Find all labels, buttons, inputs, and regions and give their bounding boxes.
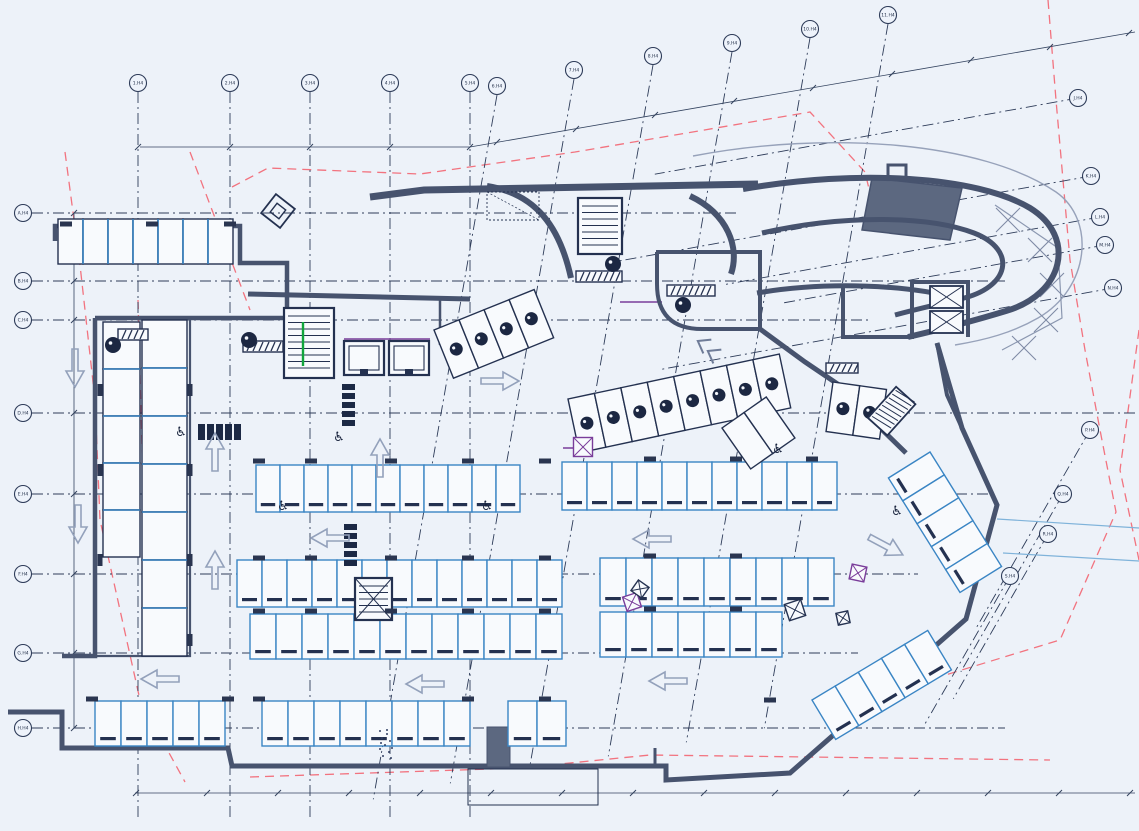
gravel-dot [386, 729, 388, 731]
wheel-stop [709, 648, 725, 651]
structural-column [764, 698, 776, 703]
grid-bubble-label: 9.H4 [727, 41, 738, 47]
wheel-stop [817, 501, 832, 504]
wheel-stop [767, 501, 782, 504]
gravel-dot [380, 742, 382, 744]
structural-column [730, 554, 742, 559]
wheel-stop [293, 737, 309, 740]
wheel-stop [515, 650, 531, 653]
wheel-stop [429, 503, 443, 506]
equipment-symbol-dot [245, 336, 249, 340]
wheelchair-icon: ♿ [891, 504, 903, 519]
gravel-dot [379, 730, 381, 732]
parking-stall [142, 512, 187, 560]
wheel-stop [492, 598, 507, 601]
crosswalk-bar [344, 551, 357, 557]
equipment-symbol [241, 332, 257, 348]
grid-bubble-label: G.H4 [17, 651, 28, 657]
parking-row [237, 560, 562, 607]
grid-bubble-label: F.H4 [18, 572, 28, 578]
wheel-stop [514, 737, 531, 740]
floor-plan-canvas: ♿♿♿♿♿♿1.H42.H43.H44.H45.H46.H47.H48.H49.… [0, 0, 1139, 831]
grid-bubble-label: 1.H4 [133, 81, 144, 87]
structural-column [146, 222, 158, 227]
parking-stall [142, 608, 187, 656]
parking-stall [103, 463, 140, 510]
wheel-stop [281, 650, 297, 653]
wheel-stop [126, 737, 142, 740]
structural-column [98, 384, 103, 396]
wheelchair-icon: ♿ [277, 499, 289, 514]
wheel-stop [517, 598, 532, 601]
parking-stall [142, 368, 187, 416]
structural-column [188, 554, 193, 566]
structural-column [385, 556, 397, 561]
crosswalk-bar [225, 424, 232, 440]
parking-stall [103, 369, 140, 416]
wheel-stop [333, 503, 347, 506]
structural-column [86, 697, 98, 702]
wheel-stop [683, 597, 699, 600]
structural-column [305, 459, 317, 464]
drain-shaft [836, 611, 850, 625]
wheel-stop [442, 598, 457, 601]
structural-column [305, 609, 317, 614]
parking-row [508, 701, 566, 746]
equipment-symbol-dot [109, 341, 113, 345]
gravel-dot [386, 733, 388, 735]
wheel-stop [449, 737, 465, 740]
wheel-stop [152, 737, 168, 740]
wheel-stop [381, 503, 395, 506]
structural-column [222, 697, 234, 702]
grid-bubble-label: H.H4 [18, 726, 29, 732]
wheel-stop [592, 501, 607, 504]
wheel-stop [735, 597, 751, 600]
wheel-stop [204, 737, 220, 740]
grid-bubble-label: E.H4 [18, 492, 29, 498]
structural-column [305, 556, 317, 561]
wheelchair-icon: ♿ [481, 499, 493, 514]
crosswalk-bar [344, 560, 357, 566]
wheel-stop [453, 503, 467, 506]
wheel-stop [437, 650, 453, 653]
equipment-symbol [105, 337, 121, 353]
parking-stall [142, 560, 187, 608]
parking-row [58, 219, 233, 264]
structural-column [60, 222, 72, 227]
crosswalk-bar [344, 533, 357, 539]
wheel-stop [617, 501, 632, 504]
wheel-stop [385, 650, 401, 653]
wheel-stop [642, 501, 657, 504]
wheel-stop [543, 737, 560, 740]
structural-column [98, 554, 103, 566]
wheel-stop [317, 598, 332, 601]
grid-bubble-label: M.H4 [1099, 243, 1111, 249]
crosswalk-bar [344, 524, 357, 530]
gravel-dot [390, 757, 392, 759]
wheel-stop [345, 737, 361, 740]
parking-stall [183, 219, 208, 264]
grid-bubble-label: 10.H4 [803, 27, 817, 33]
wheel-stop [405, 503, 419, 506]
gravel-dot [391, 747, 393, 749]
wheel-stop [267, 598, 282, 601]
elevator-door [360, 369, 368, 375]
elevator-door [405, 369, 413, 375]
grid-bubble-label: 3.H4 [305, 81, 316, 87]
wheel-stop [463, 650, 479, 653]
structural-column [188, 464, 193, 476]
crosswalk-bar [342, 393, 355, 399]
wheel-stop [605, 648, 621, 651]
wheelchair-icon: ♿ [175, 425, 187, 440]
parking-stall [158, 219, 183, 264]
grid-bubble-label: 11.H4 [881, 13, 895, 19]
parking-stall [142, 416, 187, 464]
structural-column [806, 457, 818, 462]
wheel-stop [178, 737, 194, 740]
grid-bubble-label: 7.H4 [569, 68, 580, 74]
wheel-stop [489, 650, 505, 653]
structural-column [385, 609, 397, 614]
equipment-symbol [675, 297, 691, 313]
wall-fill [487, 727, 510, 767]
structural-column [462, 556, 474, 561]
wheel-stop [683, 648, 699, 651]
crosswalk-bar [342, 420, 355, 426]
parking-stall [108, 219, 133, 264]
structural-column [224, 222, 236, 227]
wheel-stop [357, 503, 371, 506]
structural-column [462, 697, 474, 702]
wheel-stop [333, 650, 349, 653]
grid-bubble-label: P.H4 [1085, 428, 1095, 434]
wheel-stop [657, 648, 673, 651]
wheel-stop [411, 650, 427, 653]
structural-column [253, 556, 265, 561]
wheel-stop [692, 501, 707, 504]
wheel-stop [657, 597, 673, 600]
grid-bubble-label: 8.H4 [648, 54, 659, 60]
parking-row [142, 320, 187, 656]
crosswalk-bar [344, 542, 357, 548]
structural-column [539, 459, 551, 464]
wheel-stop [309, 503, 323, 506]
grid-bubble-label: 4.H4 [385, 81, 396, 87]
wheel-stop [417, 598, 432, 601]
wheel-stop [742, 501, 757, 504]
structural-column [539, 697, 551, 702]
crosswalk-bar [198, 424, 205, 440]
structural-column [730, 607, 742, 612]
wheel-stop [397, 737, 413, 740]
grid-bubble-label: Q.H4 [1057, 492, 1068, 498]
grid-bubble-label: N.H4 [1107, 286, 1118, 292]
grid-bubble-label: A.H4 [18, 211, 29, 217]
gravel-dot [381, 737, 383, 739]
grid-bubble-label: B.H4 [18, 279, 29, 285]
wheel-stop [371, 737, 387, 740]
wheel-stop [501, 503, 515, 506]
gravel-dot [379, 748, 381, 750]
wheel-stop [467, 598, 482, 601]
crosswalk-bar [342, 402, 355, 408]
ramp-deck-fill [862, 178, 962, 240]
wheel-stop [267, 737, 283, 740]
structural-column [730, 457, 742, 462]
wheel-stop [792, 501, 807, 504]
parking-stall [142, 320, 187, 368]
parking-stall [83, 219, 108, 264]
parking-row [103, 322, 140, 557]
grid-bubble-label: 5.H4 [465, 81, 476, 87]
gravel-dot [389, 740, 391, 742]
equipment-symbol [605, 256, 621, 272]
structural-column [462, 459, 474, 464]
parking-row [262, 701, 470, 746]
wheel-stop [709, 597, 725, 600]
grid-bubble-label: J.H4 [1072, 96, 1082, 102]
crosswalk-bar [234, 424, 241, 440]
grid-bubble-label: L.H4 [1095, 215, 1105, 221]
wheel-stop [100, 737, 116, 740]
parking-row [250, 614, 562, 659]
wheel-stop [667, 501, 682, 504]
structural-column [462, 609, 474, 614]
wheel-stop [813, 597, 829, 600]
grid-bubble-label: R.H4 [1043, 532, 1054, 538]
grid-bubble-label: 2.H4 [225, 81, 236, 87]
drain-shaft [849, 564, 867, 582]
gravel-dot [388, 751, 390, 753]
gravel-dot [382, 755, 384, 757]
structural-column [644, 607, 656, 612]
gravel-dot [384, 744, 386, 746]
structural-column [253, 697, 265, 702]
grid-bubble-label: D.H4 [17, 411, 28, 417]
wheel-stop [717, 501, 732, 504]
wheelchair-icon: ♿ [333, 430, 345, 445]
structural-column [253, 609, 265, 614]
wheel-stop [255, 650, 271, 653]
wheelchair-icon: ♿ [772, 442, 784, 457]
structural-column [539, 556, 551, 561]
drain-shaft [574, 438, 593, 457]
parking-stall [142, 464, 187, 512]
wheel-stop [541, 650, 557, 653]
structural-column [98, 464, 103, 476]
wheel-stop [631, 648, 647, 651]
crosswalk-bar [342, 411, 355, 417]
wheel-stop [605, 597, 621, 600]
equipment-symbol-dot [679, 301, 683, 305]
structural-column [188, 384, 193, 396]
grid-bubble-label: 6.H4 [492, 84, 503, 90]
wheel-stop [319, 737, 335, 740]
parking-row [600, 612, 782, 657]
wheel-stop [261, 503, 275, 506]
structural-column [188, 634, 193, 646]
structural-column [253, 459, 265, 464]
wheel-stop [423, 737, 439, 740]
wheel-stop [761, 648, 777, 651]
wheel-stop [542, 598, 557, 601]
grid-bubble-label: C.H4 [18, 318, 29, 324]
equipment-symbol-dot [609, 260, 613, 264]
wheel-stop [392, 598, 407, 601]
structural-column [539, 609, 551, 614]
structural-column [644, 457, 656, 462]
crosswalk-bar [342, 384, 355, 390]
parking-stall [103, 510, 140, 557]
floor-plan-viewport: ♿♿♿♿♿♿1.H42.H43.H44.H45.H46.H47.H48.H49.… [0, 0, 1139, 831]
structural-column [385, 459, 397, 464]
wheel-stop [735, 648, 751, 651]
parking-row [562, 462, 837, 510]
wheel-stop [307, 650, 323, 653]
wheel-stop [567, 501, 582, 504]
wheel-stop [292, 598, 307, 601]
parking-row [95, 701, 225, 746]
structural-column [644, 554, 656, 559]
wheel-stop [761, 597, 777, 600]
parking-stall [103, 416, 140, 463]
wheel-stop [359, 650, 375, 653]
grid-bubble-label: S.H4 [1005, 574, 1016, 580]
wheel-stop [242, 598, 257, 601]
grid-bubble-label: K.H4 [1086, 174, 1097, 180]
